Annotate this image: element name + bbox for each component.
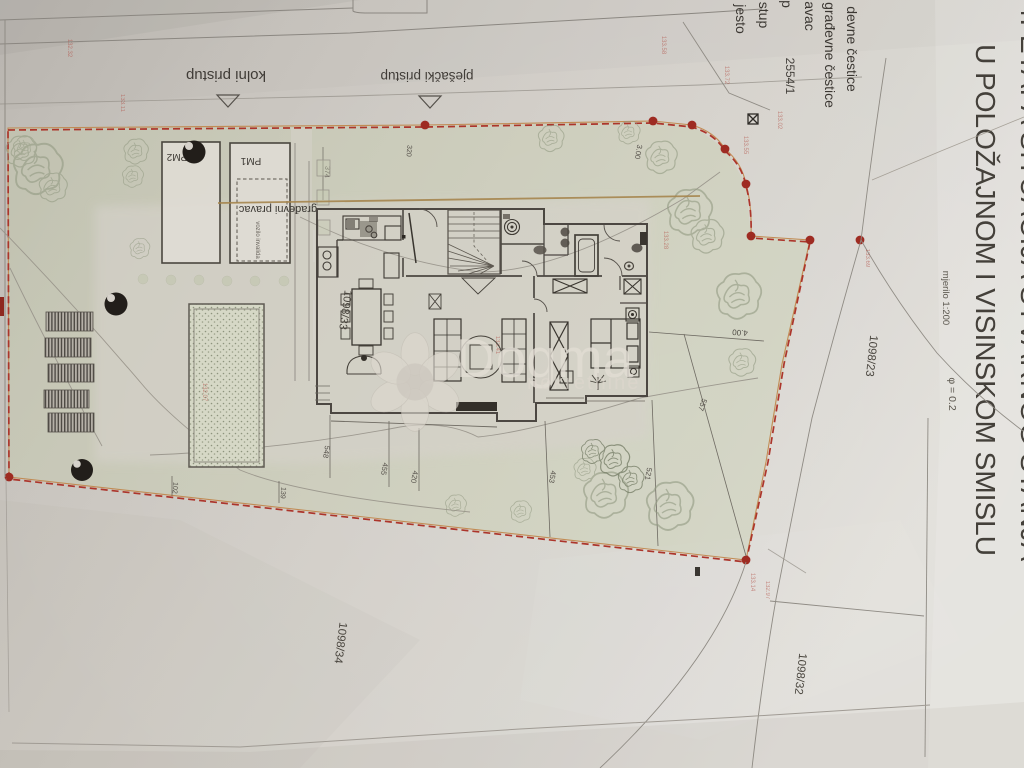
svg-text:4.00: 4.00 [731,327,748,337]
svg-text:građevni pravac: građevni pravac [238,203,317,215]
svg-text:stup: stup [756,2,772,29]
svg-text:PM1: PM1 [240,155,261,166]
svg-text:nekretnine: nekretnine [527,372,640,394]
svg-text:133.28: 133.28 [662,231,668,250]
svg-text:132.32: 132.32 [66,39,72,58]
svg-text:320: 320 [405,145,413,157]
svg-text:φ = 0.2: φ = 0.2 [946,377,958,411]
svg-text:U POLOŽAJNOM I VISINSKOM SMISL: U POLOŽAJNOM I VISINSKOM SMISLU [970,44,1001,556]
svg-text:132.97: 132.97 [764,581,770,600]
svg-text:avac: avac [802,1,818,31]
svg-text:kolni pristup: kolni pristup [186,67,266,84]
svg-text:vozilo invalida: vozilo invalida [254,221,260,259]
svg-text:133.69: 133.69 [864,249,870,268]
svg-text:mjerilo 1:200: mjerilo 1:200 [940,271,951,325]
svg-text:133.55: 133.55 [742,136,748,155]
svg-text:133.02: 133.02 [776,111,782,130]
svg-text:102: 102 [171,482,179,494]
svg-text:2554/1: 2554/1 [783,58,797,95]
svg-text:139: 139 [279,487,287,499]
svg-text:133.72: 133.72 [723,66,729,85]
svg-text:132.07: 132.07 [201,383,207,402]
svg-text:devne čestice: devne čestice [844,6,860,92]
svg-text:jesto: jesto [733,3,749,34]
svg-text:133.11: 133.11 [119,94,125,113]
svg-text:133.14: 133.14 [749,573,755,592]
svg-text:p: p [779,0,795,8]
svg-text:građevne čestice: građevne čestice [822,2,838,108]
svg-text:133.58: 133.58 [660,36,666,55]
svg-text:pješački pristup: pješački pristup [380,69,473,84]
svg-text:4. ETAPA SITUACIJA STVARNOG ST: 4. ETAPA SITUACIJA STVARNOG STANJA [1015,2,1024,562]
